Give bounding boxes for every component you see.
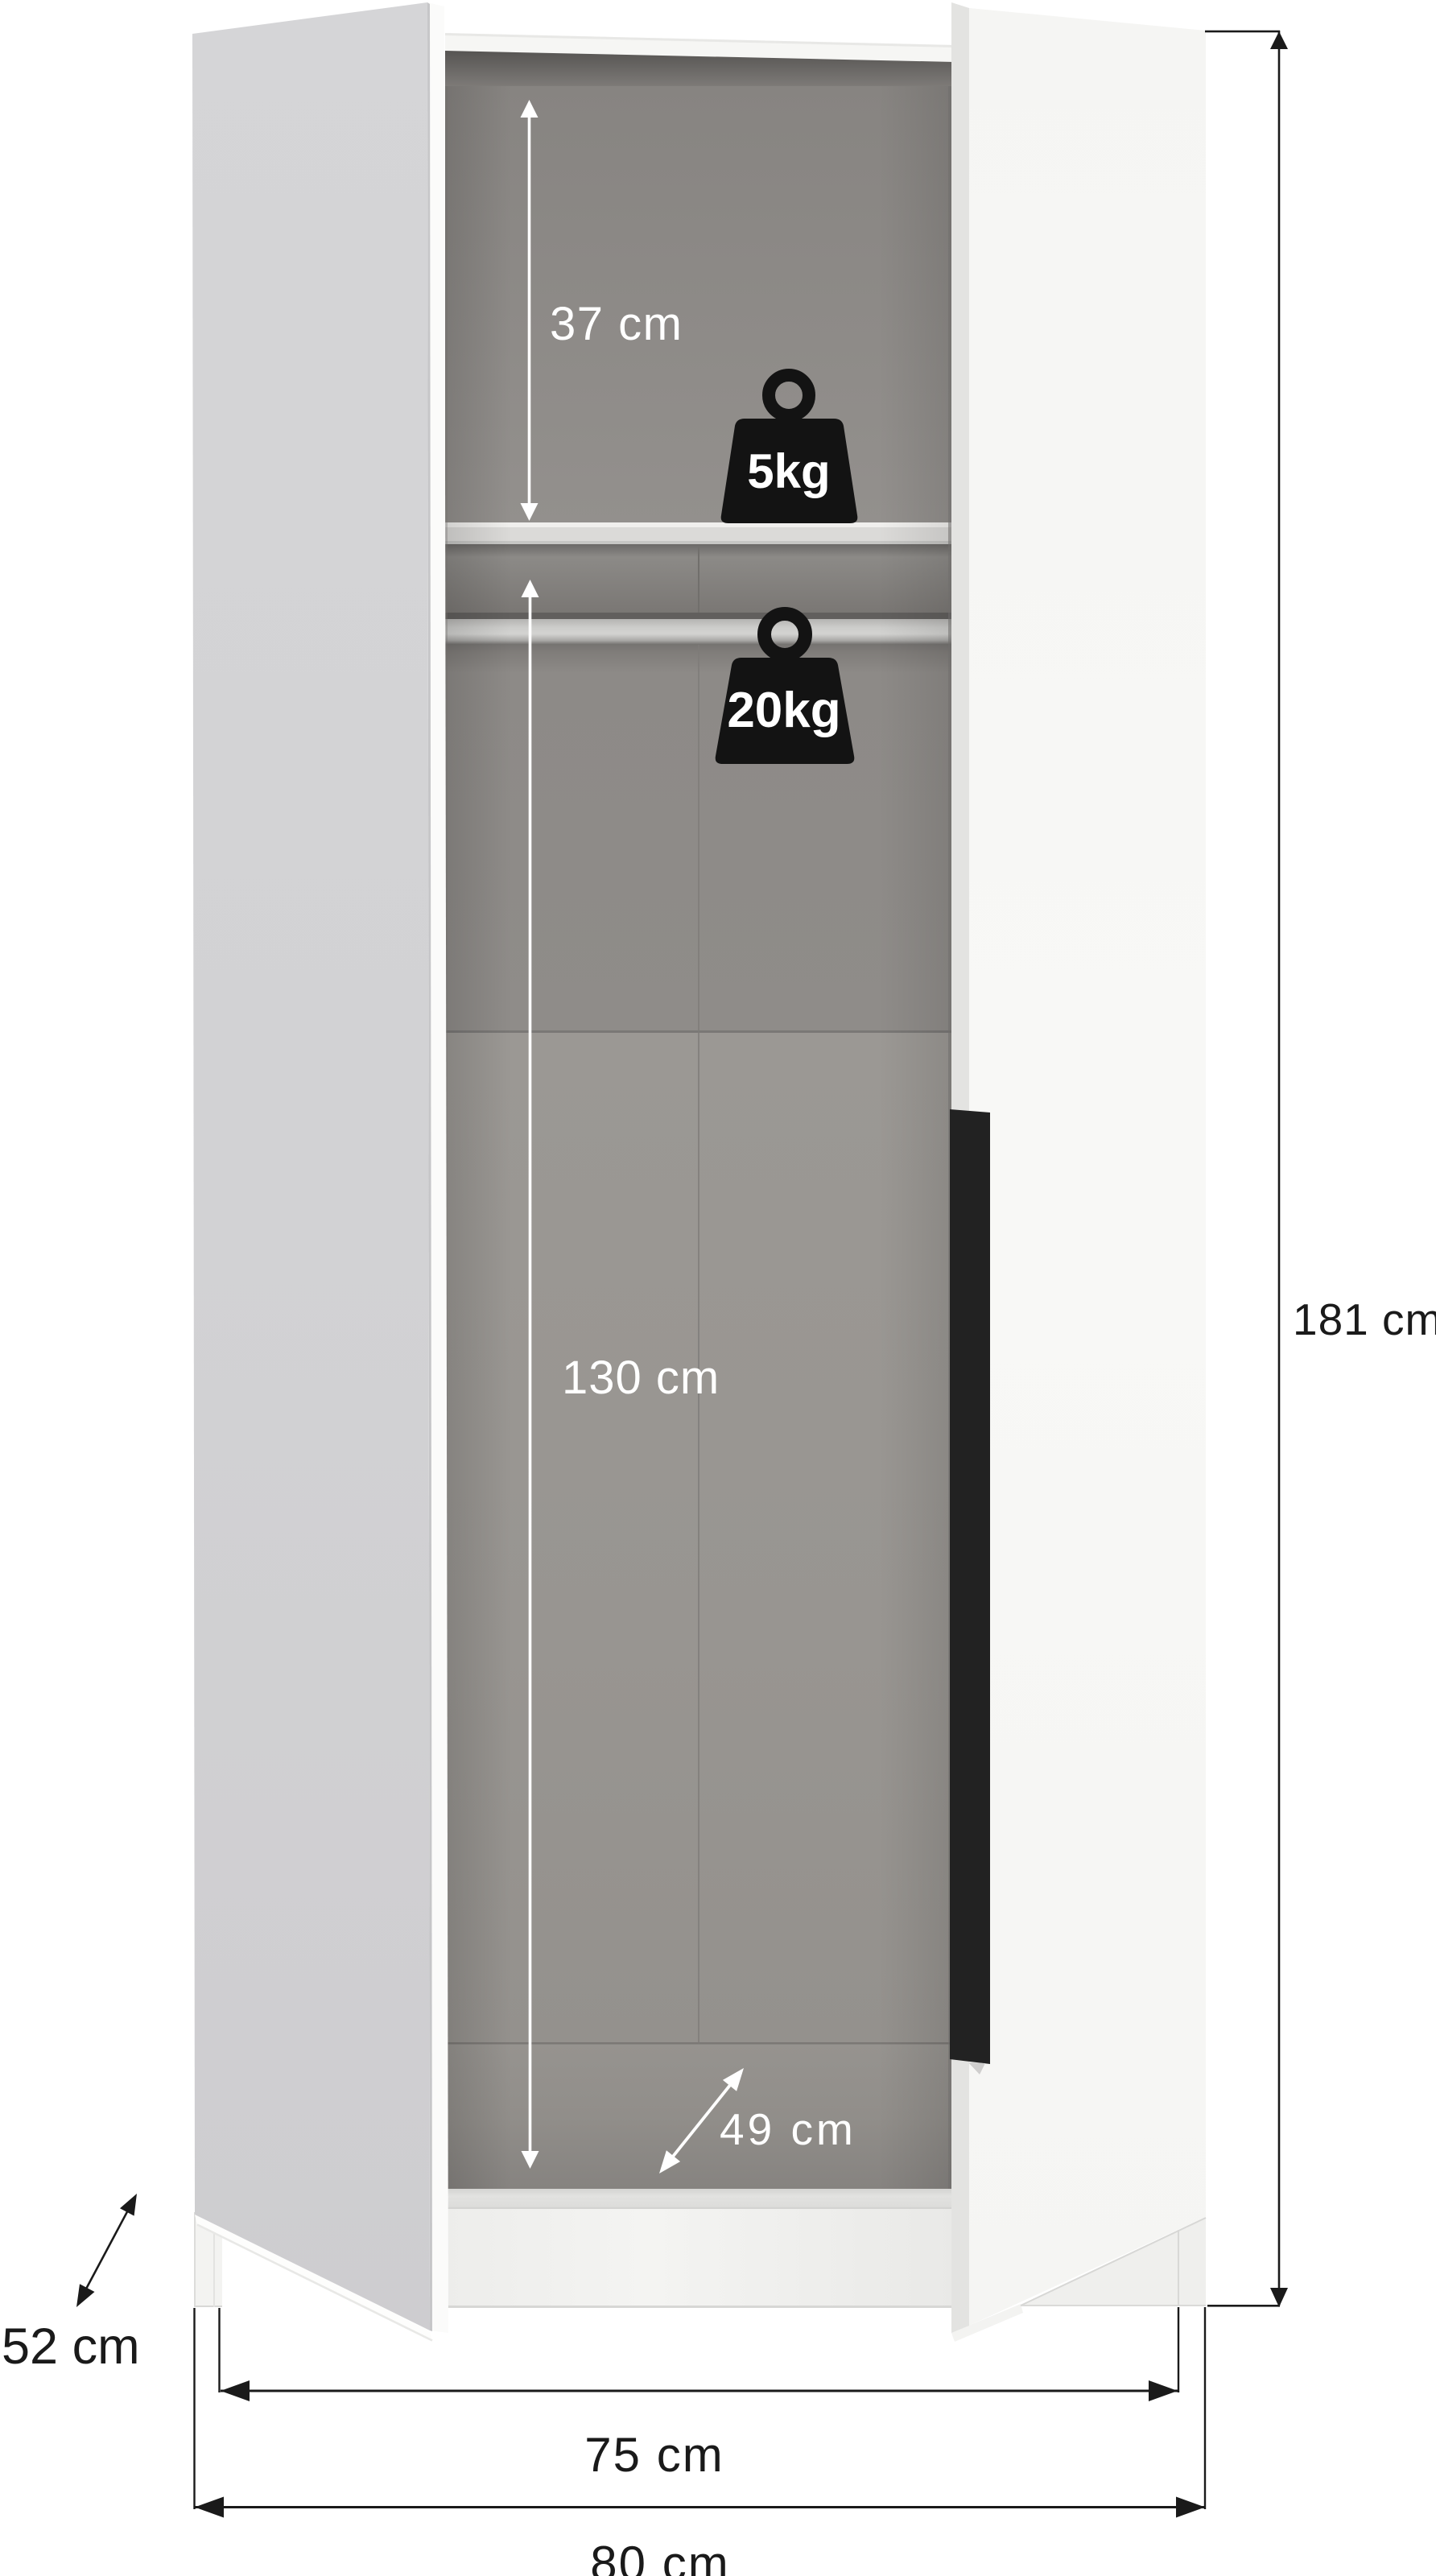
svg-text:20kg: 20kg — [727, 683, 840, 738]
svg-text:75 cm: 75 cm — [584, 2428, 724, 2482]
svg-text:52 cm: 52 cm — [2, 2318, 140, 2375]
svg-text:49 cm: 49 cm — [720, 2104, 856, 2154]
svg-text:130 cm: 130 cm — [562, 1352, 720, 1404]
svg-text:181 cm: 181 cm — [1293, 1294, 1436, 1344]
svg-text:5kg: 5kg — [747, 444, 830, 498]
svg-text:37 cm: 37 cm — [550, 298, 683, 350]
svg-text:80 cm: 80 cm — [590, 2537, 729, 2576]
